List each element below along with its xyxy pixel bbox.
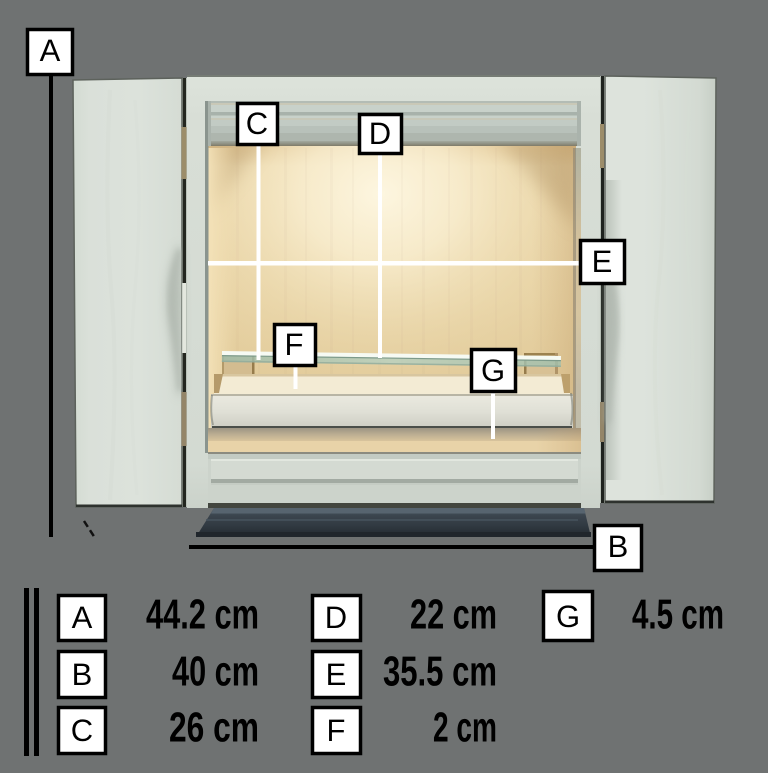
svg-text:E: E — [592, 244, 613, 279]
svg-text:F: F — [327, 713, 346, 748]
svg-text:D: D — [369, 116, 391, 151]
svg-text:A: A — [40, 33, 61, 68]
svg-text:A: A — [72, 600, 93, 635]
svg-text:G: G — [556, 599, 580, 634]
svg-text:40 cm: 40 cm — [172, 648, 259, 695]
svg-text:B: B — [608, 529, 629, 564]
svg-text:F: F — [285, 327, 304, 362]
svg-text:E: E — [326, 657, 347, 692]
svg-text:2 cm: 2 cm — [433, 704, 497, 751]
svg-text:C: C — [246, 106, 268, 141]
svg-text:D: D — [325, 600, 347, 635]
svg-text:B: B — [72, 657, 93, 692]
svg-text:44.2 cm: 44.2 cm — [146, 591, 259, 638]
svg-text:22 cm: 22 cm — [410, 591, 497, 638]
svg-text:35.5 cm: 35.5 cm — [383, 648, 497, 695]
svg-text:4.5 cm: 4.5 cm — [632, 591, 724, 638]
svg-text:C: C — [71, 713, 93, 748]
svg-text:G: G — [481, 353, 505, 388]
svg-text:26 cm: 26 cm — [169, 704, 259, 751]
